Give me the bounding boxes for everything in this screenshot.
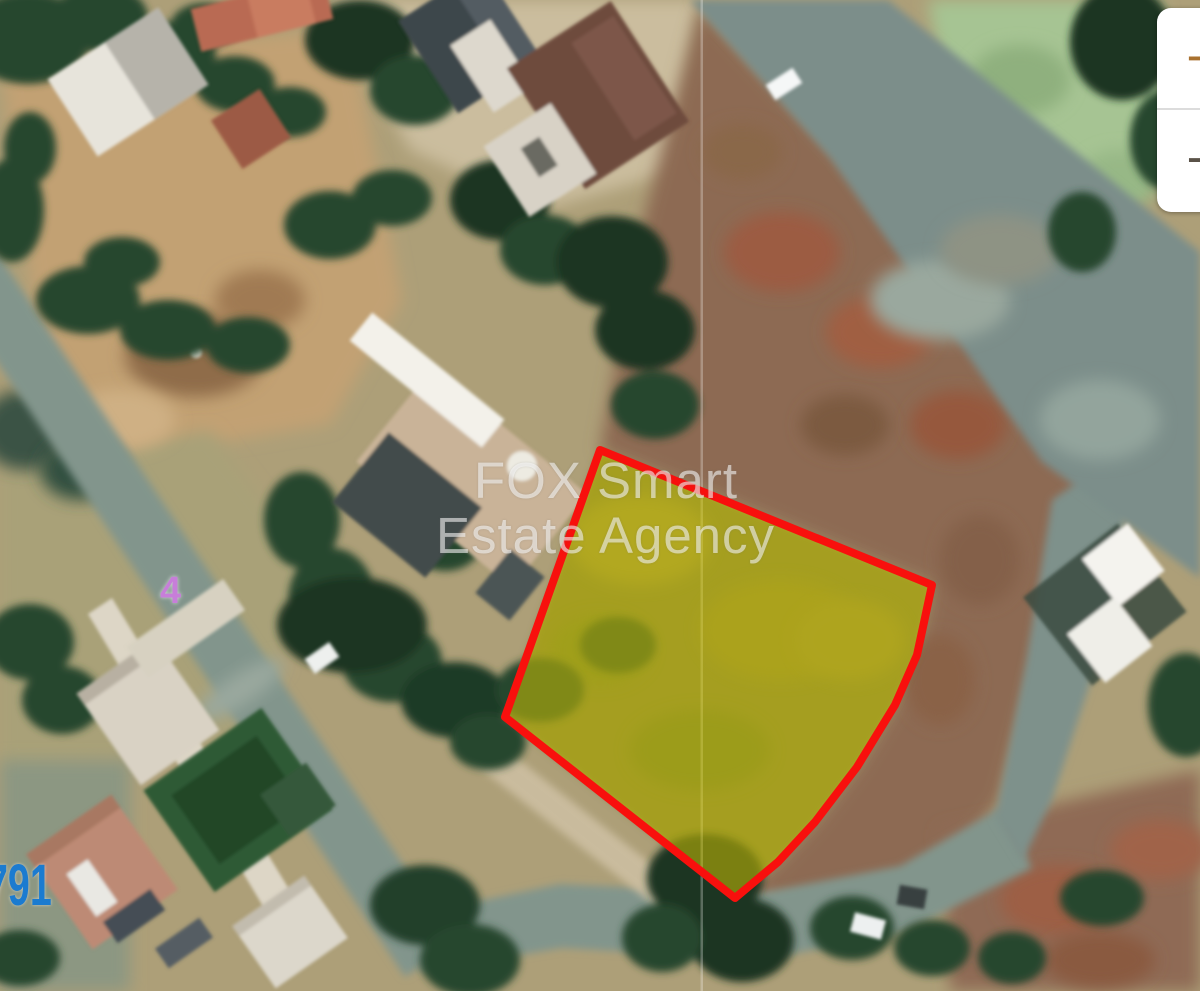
zoom-out-button[interactable]: − bbox=[1157, 110, 1200, 210]
road-number-label: 4 bbox=[160, 570, 181, 613]
map-zoom-control: + − bbox=[1157, 8, 1200, 212]
zoom-in-button[interactable]: + bbox=[1157, 8, 1200, 108]
satellite-map-image bbox=[0, 0, 1200, 991]
map-viewport[interactable]: FOX Smart Estate Agency 4 791 + − bbox=[0, 0, 1200, 991]
parcel-number-label: 791 bbox=[0, 852, 52, 919]
